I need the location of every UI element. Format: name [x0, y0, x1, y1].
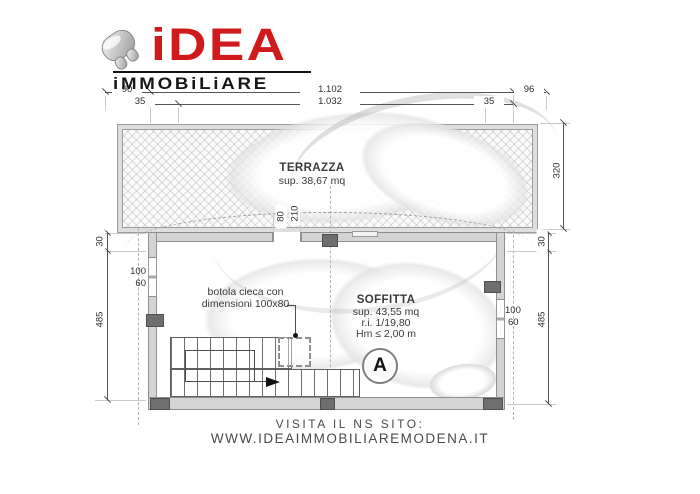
dimension-line	[548, 233, 549, 404]
pillar	[150, 398, 170, 410]
extension-line	[178, 108, 179, 123]
extension-line	[485, 108, 486, 123]
extension-line	[513, 96, 514, 123]
dim-label-30-right: 30	[537, 230, 548, 254]
pillar	[322, 234, 338, 247]
stair-walk-line	[185, 350, 255, 382]
wall-left-upper	[148, 232, 157, 258]
dim-label-door-width: 80	[276, 205, 287, 229]
extension-line	[273, 214, 274, 232]
footer-line1: VISITA IL NS SITO:	[0, 417, 700, 431]
window-left	[148, 258, 157, 296]
soffitta-height: Hm ≤ 2,00 m	[330, 329, 442, 341]
dim-label-35-left: 35	[125, 96, 155, 107]
floor-plan-page: iDEA iMMOBiLiARE TERRAZZA sup. 38,67 mq …	[0, 0, 700, 494]
extension-line	[546, 96, 547, 110]
pillar	[484, 281, 501, 293]
extension-line	[95, 400, 146, 401]
dashed-section-line	[330, 186, 331, 397]
botola-hatch	[278, 337, 311, 367]
mouse-logo-icon	[95, 26, 151, 76]
brand-text: iDEA	[151, 24, 287, 66]
pillar	[146, 314, 164, 327]
window-right-sill: 60	[508, 317, 530, 328]
brand-underline	[113, 71, 311, 73]
botola-note: botola cieca con dimensioni 100x80	[178, 287, 313, 310]
window-right-width: 100	[505, 305, 527, 316]
dimension-line	[107, 233, 108, 400]
terrace-area: sup. 38,67 mq	[232, 176, 392, 188]
dim-label-door-height: 210	[290, 202, 301, 226]
footer-website: WWW.IDEAIMMOBILIAREMODENA.IT	[0, 431, 700, 446]
pillar	[483, 398, 503, 410]
dim-label-30-left: 30	[95, 230, 106, 254]
botola-note-line1: botola cieca con	[178, 287, 313, 299]
dim-label-320: 320	[552, 159, 563, 183]
logo: iDEA iMMOBiLiARE	[95, 24, 315, 90]
terrace-title: TERRAZZA	[232, 162, 392, 174]
dashed-guide-line	[138, 228, 139, 425]
leader-dot	[293, 333, 298, 338]
extension-line	[105, 96, 106, 110]
wall-recess	[352, 231, 378, 237]
stair-direction-arrow	[266, 377, 280, 387]
dimension-line	[563, 123, 564, 229]
door-opening	[273, 232, 301, 242]
botola-note-line2: dimensioni 100x80	[178, 299, 313, 311]
dim-label-485-right: 485	[537, 308, 548, 332]
dim-label-35-right: 35	[474, 96, 504, 107]
window-left-sill: 60	[124, 278, 146, 289]
section-badge-a: A	[362, 348, 398, 384]
soffitta-title: SOFFITTA	[330, 294, 442, 306]
dim-label-1032: 1.032	[300, 96, 360, 107]
window-right	[496, 300, 505, 338]
pillar	[320, 398, 335, 410]
brand-subtitle: iMMOBiLiARE	[113, 74, 269, 94]
dim-label-96: 96	[514, 84, 544, 95]
wall-top-left	[148, 232, 273, 242]
window-left-width: 100	[124, 266, 146, 277]
dim-label-485-left: 485	[95, 308, 106, 332]
